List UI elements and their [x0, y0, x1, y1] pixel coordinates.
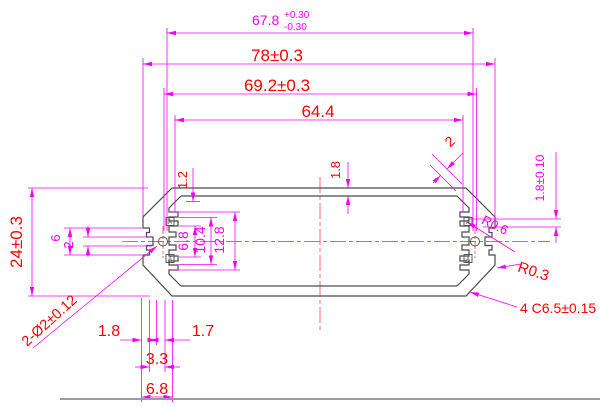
dim-78: 78±0.3 — [251, 46, 303, 65]
dim-height-24: 24±0.3 — [7, 216, 26, 268]
dim-boss-10-4: 10.4 — [192, 226, 208, 253]
profile-drawing: 67.8 +0.30 -0.30 78±0.3 69.2±0.3 64.4 2 … — [0, 0, 600, 407]
note-chamfer-4-c6-5: 4 C6.5±0.15 — [520, 300, 596, 316]
dim-right-wall-1-8: 1.8±0.10 — [533, 154, 547, 201]
dim-radius-r0-3: R0.3 — [516, 259, 551, 285]
dim-left-wall-1-2: 1.2 — [175, 171, 190, 189]
dim-top-wall-1-8: 1.8 — [328, 161, 343, 179]
dimension-labels: 67.8 +0.30 -0.30 78±0.3 69.2±0.3 64.4 2 … — [7, 10, 596, 398]
dim-67-8-lower-tol: -0.30 — [284, 22, 307, 33]
dim-67-8: 67.8 — [252, 12, 279, 28]
dim-bottom-6-8: 6.8 — [146, 381, 168, 398]
datum-label-bottom-left: A — [168, 257, 172, 263]
dim-boss-12-8: 12.8 — [211, 226, 227, 253]
dim-boss-6-8: 6.8 — [175, 231, 191, 251]
dim-bottom-3-3: 3.3 — [146, 351, 168, 368]
dim-67-8-upper-tol: +0.30 — [284, 10, 310, 21]
dim-bottom-1-8: 1.8 — [98, 323, 120, 340]
dim-64-4: 64.4 — [301, 102, 334, 121]
note-holes-2-d2: 2-Ø2±0.12 — [19, 292, 81, 350]
dim-radius-r0-6: R0.6 — [479, 212, 510, 238]
dim-groove-6: 6 — [48, 234, 63, 241]
datum-label-bottom-right: A — [466, 257, 470, 263]
datum-label-top-left: A — [168, 220, 172, 226]
dim-groove-2: 2 — [61, 241, 76, 248]
datum-label-top-right: A — [466, 220, 470, 226]
centerlines — [122, 177, 550, 330]
dim-chamfer-wall-2: 2 — [441, 133, 458, 150]
dim-bottom-1-7: 1.7 — [192, 323, 214, 340]
dim-69-2: 69.2±0.3 — [244, 76, 310, 95]
cad-drawing-canvas: 67.8 +0.30 -0.30 78±0.3 69.2±0.3 64.4 2 … — [0, 0, 600, 407]
